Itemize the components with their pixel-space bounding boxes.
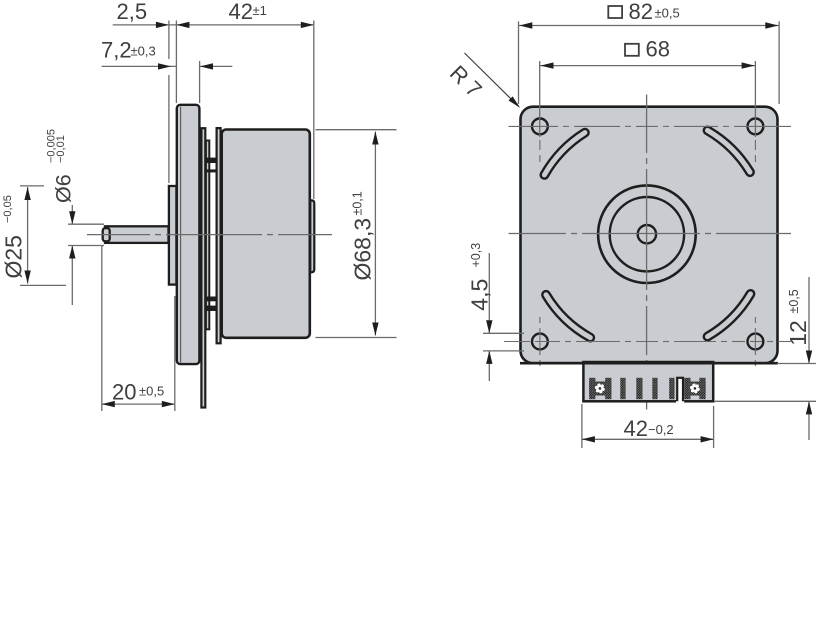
svg-text:Ø25: Ø25 [1,235,27,278]
svg-text:2,5: 2,5 [117,0,148,24]
svg-text:4,5: 4,5 [467,279,493,311]
svg-text:20: 20 [112,380,136,405]
svg-text:+0,3: +0,3 [469,243,483,268]
svg-text:7,2: 7,2 [101,38,132,63]
svg-text:±0,5: ±0,5 [139,384,164,399]
svg-text:±0,3: ±0,3 [131,44,156,59]
svg-text:Ø6: Ø6 [52,174,76,203]
svg-text:−0,01: −0,01 [55,135,67,163]
svg-text:−0,2: −0,2 [648,422,674,437]
svg-text:68: 68 [646,37,670,62]
svg-text:42: 42 [229,0,253,24]
svg-text:±0,5: ±0,5 [787,289,801,313]
svg-text:42: 42 [624,416,648,441]
svg-text:Ø68,3: Ø68,3 [349,218,375,281]
svg-text:±1: ±1 [253,3,267,18]
svg-text:±0,1: ±0,1 [351,191,365,215]
svg-text:12: 12 [785,320,811,346]
svg-text:82: 82 [629,0,653,24]
svg-text:−0,05: −0,05 [2,195,14,223]
svg-text:±0,5: ±0,5 [655,6,680,21]
